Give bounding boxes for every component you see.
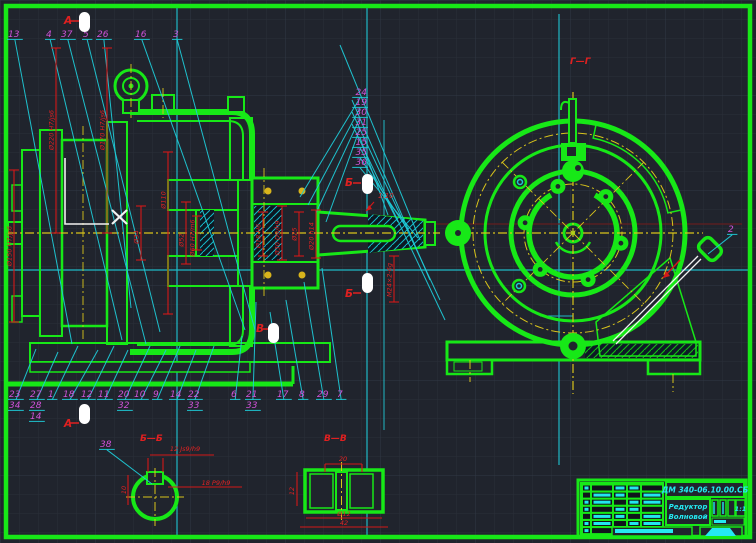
- svg-text:37: 37: [61, 30, 73, 40]
- title-block-left-table: [583, 486, 662, 534]
- section-b-upper: Б: [345, 177, 353, 189]
- marker-capsule-v: [268, 323, 279, 343]
- detail-dimension-12[interactable]: 12: [288, 487, 296, 495]
- svg-text:26: 26: [97, 30, 109, 40]
- section-title-gg: Г—Г: [570, 57, 592, 67]
- detail-dimension-10[interactable]: 10: [120, 486, 128, 494]
- svg-text:3: 3: [173, 30, 179, 40]
- svg-text:34: 34: [9, 401, 21, 411]
- svg-text:6: 6: [231, 390, 237, 400]
- svg-text:12 Js9/h9: 12 Js9/h9: [170, 445, 200, 453]
- svg-text:17: 17: [277, 390, 289, 400]
- detail-dimension-18 P9/h9[interactable]: 18 P9/h9: [202, 479, 231, 487]
- scale-value: 1:1: [735, 505, 747, 513]
- svg-text:18 P9/h9: 18 P9/h9: [202, 479, 231, 487]
- svg-text:Ø60 H7/m6: Ø60 H7/m6: [189, 219, 197, 257]
- svg-text:20: 20: [339, 455, 347, 463]
- section-v-mark: В: [256, 323, 264, 335]
- svg-text:Ø150 H7/js6: Ø150 H7/js6: [6, 226, 14, 267]
- svg-text:7: 7: [337, 390, 343, 400]
- svg-text:22: 22: [188, 390, 200, 400]
- svg-text:19: 19: [356, 98, 368, 108]
- detail-dimension-20[interactable]: 20: [339, 455, 347, 463]
- svg-text:23: 23: [9, 390, 21, 400]
- svg-text:10: 10: [120, 486, 128, 494]
- svg-text:33: 33: [188, 401, 200, 411]
- svg-text:Ø20 h14: Ø20 h14: [308, 222, 316, 251]
- svg-text:Ø170 H7/js6: Ø170 H7/js6: [99, 110, 107, 151]
- svg-text:4: 4: [46, 30, 52, 40]
- taper-label: 1:10: [378, 192, 394, 200]
- detail-dimension-12 Js9/h9[interactable]: 12 Js9/h9: [170, 445, 200, 453]
- part-name-line2: Волновой: [668, 513, 707, 521]
- svg-text:32: 32: [118, 401, 130, 411]
- section-a-bottom: А: [63, 418, 72, 430]
- detail-dimension-Ø12[interactable]: Ø12: [336, 510, 350, 518]
- part-name-line1: Редуктор: [669, 503, 708, 511]
- grid: [0, 0, 756, 543]
- svg-text:30: 30: [356, 108, 368, 118]
- detail-dimension-42[interactable]: 42: [340, 519, 348, 527]
- svg-text:28: 28: [30, 401, 42, 411]
- marker-capsule-a-bottom: [79, 404, 90, 424]
- svg-text:13: 13: [8, 30, 20, 40]
- title-block[interactable]: ДМ 340-06.10.00.СБ Редуктор Волновой 1:1: [578, 480, 749, 537]
- svg-text:38: 38: [100, 440, 112, 450]
- svg-text:20: 20: [118, 390, 130, 400]
- svg-text:27: 27: [30, 390, 42, 400]
- cad-canvas[interactable]: ДМ 340-06.10.00.СБ Редуктор Волновой 1:1…: [0, 0, 756, 543]
- svg-text:Ø52: Ø52: [178, 233, 186, 247]
- svg-text:12: 12: [81, 390, 93, 400]
- section-title-bb: Б—Б: [140, 434, 163, 444]
- svg-text:10: 10: [134, 390, 146, 400]
- svg-text:11: 11: [98, 390, 109, 400]
- svg-text:42: 42: [340, 519, 348, 527]
- svg-text:31: 31: [356, 118, 367, 128]
- marker-capsule-b-upper: [362, 174, 373, 194]
- section-title-vv: В—В: [324, 434, 347, 444]
- svg-text:15: 15: [356, 138, 368, 148]
- svg-text:Ø12: Ø12: [336, 510, 350, 518]
- svg-text:8: 8: [299, 390, 305, 400]
- section-b-lower: Б: [345, 288, 353, 300]
- marker-capsule-a-top: [79, 12, 90, 32]
- svg-text:Ø220 H7/js6: Ø220 H7/js6: [48, 110, 56, 151]
- svg-text:12: 12: [288, 487, 296, 495]
- svg-text:Ø34: Ø34: [133, 230, 141, 244]
- svg-text:16: 16: [135, 30, 147, 40]
- svg-text:25: 25: [356, 128, 368, 138]
- doc-number: ДМ 340-06.10.00.СБ: [661, 486, 749, 495]
- svg-text:Ø25: Ø25: [291, 227, 299, 241]
- svg-text:35: 35: [356, 148, 368, 158]
- svg-text:1: 1: [48, 390, 54, 400]
- svg-text:21: 21: [246, 390, 257, 400]
- svg-text:33: 33: [246, 401, 258, 411]
- marker-capsule-b-lower: [362, 273, 373, 293]
- svg-text:14: 14: [30, 412, 42, 422]
- svg-text:М24×2-6g: М24×2-6g: [386, 263, 394, 297]
- svg-text:Ø18 H6: Ø18 H6: [255, 224, 263, 249]
- svg-text:29: 29: [317, 390, 329, 400]
- svg-text:18: 18: [63, 390, 75, 400]
- svg-text:Ø110: Ø110: [160, 191, 168, 210]
- svg-text:36: 36: [356, 158, 368, 168]
- svg-text:2: 2: [728, 225, 734, 235]
- svg-text:9: 9: [153, 390, 159, 400]
- svg-text:24: 24: [356, 88, 368, 98]
- svg-text:Ø30 D9/h9: Ø30 D9/h9: [274, 220, 282, 256]
- cad-viewport: ДМ 340-06.10.00.СБ Редуктор Волновой 1:1…: [0, 0, 756, 543]
- svg-text:14: 14: [170, 390, 182, 400]
